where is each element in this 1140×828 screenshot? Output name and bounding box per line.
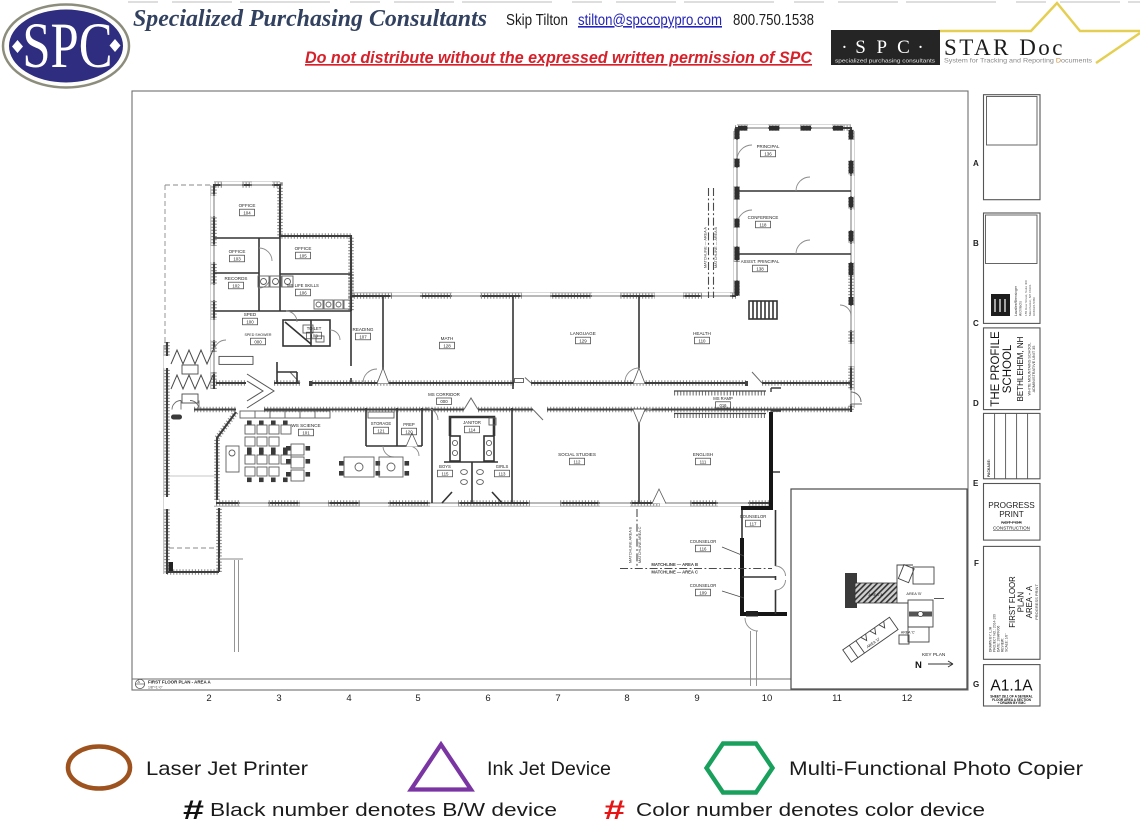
svg-text:SPED SHOWER: SPED SHOWER — [245, 333, 272, 337]
svg-text:#: # — [183, 795, 204, 825]
svg-text:specialized purchasing consult: specialized purchasing consultants — [835, 59, 935, 65]
svg-text:OFFICE: OFFICE — [239, 203, 256, 208]
svg-text:106: 106 — [299, 290, 307, 295]
svg-text:MS CORRIDOR: MS CORRIDOR — [428, 392, 460, 397]
svg-text:11: 11 — [832, 693, 842, 704]
svg-text:000: 000 — [440, 399, 448, 404]
svg-text:LANGUAGE: LANGUAGE — [570, 331, 596, 336]
svg-text:BOYS: BOYS — [439, 464, 451, 469]
svg-text:121: 121 — [377, 428, 385, 433]
svg-text:8: 8 — [624, 693, 629, 704]
svg-text:MATCHLINE — AREA B: MATCHLINE — AREA B — [714, 226, 718, 268]
svg-text:9: 9 — [694, 693, 699, 704]
svg-text:4: 4 — [346, 693, 351, 704]
svg-text:PROGRESS: PROGRESS — [988, 501, 1035, 510]
svg-text:SOCIAL STUDIES: SOCIAL STUDIES — [558, 452, 596, 457]
svg-text:MATH: MATH — [441, 336, 454, 341]
svg-text:Laser Jet Printer: Laser Jet Printer — [146, 758, 309, 780]
svg-text:A: A — [973, 159, 979, 168]
svg-text:103: 103 — [233, 256, 241, 261]
svg-text:CONFERENCE: CONFERENCE — [748, 215, 779, 220]
svg-text:116: 116 — [700, 546, 708, 551]
svg-text:ADMINISTRATIVE UNIT 35: ADMINISTRATIVE UNIT 35 — [1032, 346, 1036, 393]
svg-text:MATCHLINE AREA C: MATCHLINE AREA C — [638, 526, 642, 563]
svg-text:109: 109 — [699, 590, 707, 595]
svg-text:THE PROFILE: THE PROFILE — [990, 331, 1002, 407]
svg-text:MATCHLINE — AREA C: MATCHLINE — AREA C — [651, 570, 698, 575]
svg-text:120: 120 — [405, 429, 413, 434]
svg-text:SCALE: 1/8": SCALE: 1/8" — [1005, 633, 1009, 652]
svg-text:Architects: Architects — [1019, 301, 1023, 316]
svg-text:N: N — [915, 660, 922, 671]
svg-text:#: # — [604, 795, 625, 825]
svg-text:016: 016 — [720, 403, 728, 408]
svg-text:113: 113 — [499, 471, 507, 476]
svg-text:ASSIST. PRINCIPAL: ASSIST. PRINCIPAL — [741, 259, 780, 264]
svg-text:System for Tracking and Report: System for Tracking and Reporting Docume… — [944, 58, 1092, 65]
svg-text:5: 5 — [415, 693, 420, 704]
svg-text:Black number denotes B/W devic: Black number denotes B/W device — [210, 800, 557, 820]
svg-text:PROGRESS PRINT: PROGRESS PRINT — [1034, 584, 1039, 620]
svg-text:RECORDS: RECORDS — [225, 276, 248, 281]
svg-text:Do not distribute without the: Do not distribute without the expressed … — [305, 49, 813, 67]
svg-text:Multi-Functional Photo Copier: Multi-Functional Photo Copier — [789, 758, 1084, 780]
svg-text:102: 102 — [232, 283, 240, 288]
svg-text:136: 136 — [764, 151, 772, 156]
svg-text:112: 112 — [574, 459, 582, 464]
svg-text:PRINT: PRINT — [999, 510, 1024, 519]
svg-text:12: 12 — [902, 693, 913, 704]
svg-text:MATCHLINE — AREA A: MATCHLINE — AREA A — [704, 227, 708, 268]
svg-text:COUNSELOR: COUNSELOR — [690, 539, 717, 544]
svg-text:Skip Tilton: Skip Tilton — [506, 12, 568, 29]
svg-text:000: 000 — [254, 339, 262, 344]
svg-text:JANITOR: JANITOR — [463, 420, 481, 425]
svg-text:MS LIFE SKILLS: MS LIFE SKILLS — [287, 283, 319, 288]
svg-text:HEALTH: HEALTH — [693, 331, 711, 336]
svg-text:107: 107 — [359, 334, 367, 339]
svg-text:138: 138 — [756, 266, 764, 271]
svg-text:stilton@spccopypro.com: stilton@spccopypro.com — [578, 12, 722, 29]
svg-text:PRINCIPAL: PRINCIPAL — [757, 144, 780, 149]
svg-text:STORAGE: STORAGE — [371, 421, 392, 426]
svg-text:TOILET: TOILET — [307, 326, 322, 331]
svg-text:GIRLS: GIRLS — [496, 464, 509, 469]
svg-text:111: 111 — [700, 459, 707, 464]
svg-text:SPC: SPC — [22, 9, 112, 81]
svg-text:10: 10 — [762, 693, 773, 704]
svg-text:+ DRAWN BY EMC: + DRAWN BY EMC — [997, 701, 1026, 705]
svg-text:AREA 'A': AREA 'A' — [868, 593, 883, 597]
svg-text:2: 2 — [206, 693, 211, 704]
svg-text:Color number denotes color dev: Color number denotes color device — [636, 800, 985, 820]
svg-text:AREA 'B': AREA 'B' — [906, 592, 921, 596]
svg-text:NOT FOR: NOT FOR — [1001, 520, 1022, 525]
svg-text:7: 7 — [555, 693, 560, 704]
svg-text:118: 118 — [760, 222, 768, 227]
svg-text:PACKAGE:: PACKAGE: — [987, 459, 991, 477]
svg-text:114: 114 — [469, 427, 477, 432]
svg-text:800.750.1538: 800.750.1538 — [733, 12, 814, 29]
svg-text:AREA 'C': AREA 'C' — [901, 631, 916, 635]
svg-text:STAR Doc: STAR Doc — [944, 35, 1065, 60]
svg-text:F: F — [974, 559, 979, 568]
svg-text:E: E — [973, 479, 979, 488]
svg-text:KEY PLAN: KEY PLAN — [922, 652, 946, 658]
svg-text:AREA - A: AREA - A — [1025, 585, 1034, 618]
svg-text:105: 105 — [299, 253, 307, 258]
svg-text:ENGLISH: ENGLISH — [693, 452, 713, 457]
svg-text:FIRST FLOOR PLAN - AREA A: FIRST FLOOR PLAN - AREA A — [148, 680, 212, 685]
svg-text:BETHLEHEM, NH: BETHLEHEM, NH — [1016, 336, 1025, 401]
svg-text:1/8"=1'-0": 1/8"=1'-0" — [148, 686, 163, 690]
svg-text:WS SCIENCE: WS SCIENCE — [291, 423, 320, 428]
svg-text:G: G — [973, 680, 979, 689]
svg-text:MS RAMP: MS RAMP — [713, 396, 733, 401]
svg-text:3: 3 — [276, 693, 281, 704]
svg-text:101: 101 — [302, 430, 310, 435]
svg-text:128: 128 — [443, 343, 451, 348]
svg-text:SCHOOL: SCHOOL — [1002, 344, 1014, 393]
svg-text:603/622-5450: 603/622-5450 — [1032, 297, 1036, 316]
svg-text:C: C — [973, 319, 979, 328]
svg-text:B: B — [973, 239, 979, 248]
svg-text:6: 6 — [485, 693, 490, 704]
svg-text:A1.1A: A1.1A — [990, 678, 1033, 695]
svg-text:PREP: PREP — [403, 422, 415, 427]
svg-text:READING: READING — [353, 327, 374, 332]
svg-text:D: D — [973, 399, 979, 408]
svg-text:COUNSELOR: COUNSELOR — [690, 583, 717, 588]
svg-text:· S P C ·: · S P C · — [841, 37, 926, 58]
svg-text:SPED: SPED — [244, 312, 257, 317]
svg-text:OFFICE: OFFICE — [295, 246, 312, 251]
svg-text:129: 129 — [579, 338, 587, 343]
svg-text:OFFICE: OFFICE — [229, 249, 246, 254]
svg-text:100: 100 — [246, 319, 254, 324]
svg-text:Lavallee/Brensinger: Lavallee/Brensinger — [1014, 285, 1018, 316]
svg-text:MATCHLINE AREA B: MATCHLINE AREA B — [629, 526, 633, 563]
svg-text:MATCHLINE — AREA B: MATCHLINE — AREA B — [651, 562, 698, 567]
svg-text:104: 104 — [243, 210, 251, 215]
svg-text:WHITE MOUNTAINS SCHOOL: WHITE MOUNTAINS SCHOOL — [1028, 343, 1032, 396]
svg-text:CONSTRUCTION: CONSTRUCTION — [993, 526, 1030, 531]
svg-text:117: 117 — [750, 521, 758, 526]
svg-text:COUNSELOR: COUNSELOR — [740, 514, 767, 519]
svg-text:Ink Jet Device: Ink Jet Device — [487, 758, 611, 780]
svg-text:110: 110 — [699, 338, 707, 343]
svg-text:115: 115 — [442, 471, 450, 476]
svg-text:108: 108 — [310, 333, 318, 338]
svg-text:Specialized Purchasing Consult: Specialized Purchasing Consultants — [133, 5, 487, 32]
